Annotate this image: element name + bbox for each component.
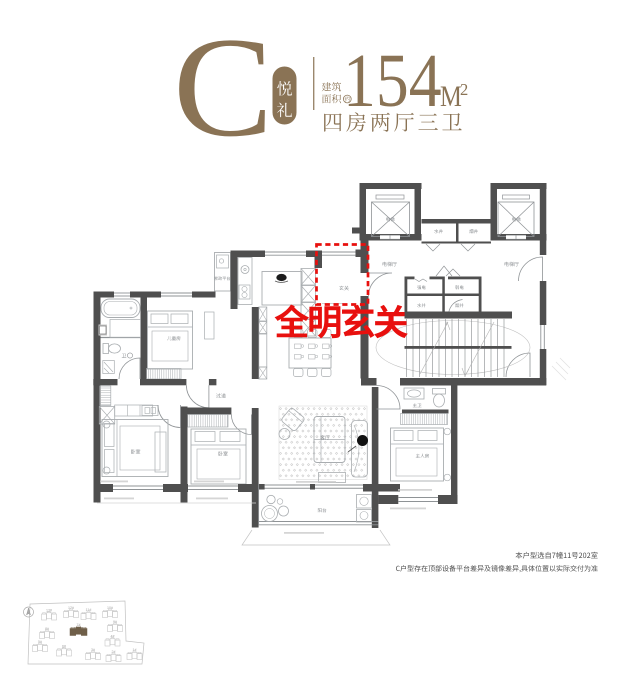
svg-text:7#: 7# <box>77 623 81 627</box>
svg-text:6#: 6# <box>62 645 66 649</box>
svg-text:C: C <box>173 7 273 166</box>
svg-text:2#: 2# <box>112 650 116 654</box>
svg-text:4#: 4# <box>111 635 115 639</box>
svg-text:1#: 1# <box>133 648 137 652</box>
svg-text:12#: 12# <box>68 606 74 610</box>
svg-text:8#: 8# <box>45 627 49 631</box>
svg-text:13#: 13# <box>46 609 52 613</box>
svg-text:9#: 9# <box>113 620 117 624</box>
svg-text:154: 154 <box>343 40 442 123</box>
svg-text:10#: 10# <box>107 606 113 610</box>
svg-text:11#: 11# <box>86 608 92 612</box>
svg-text:M: M <box>440 80 462 113</box>
svg-text:2: 2 <box>460 80 468 99</box>
svg-text:5#: 5# <box>38 640 42 644</box>
svg-text:3#: 3# <box>91 648 95 652</box>
